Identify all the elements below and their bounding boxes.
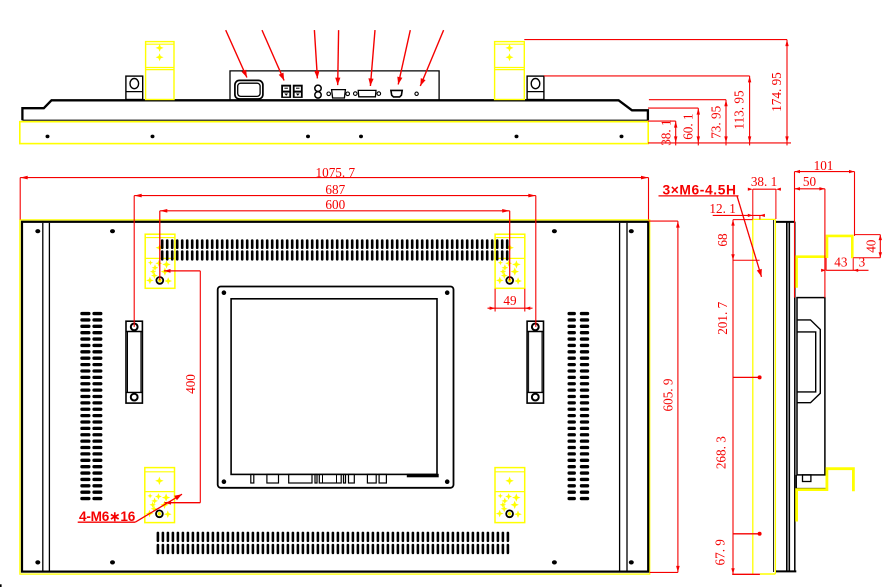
svg-text:67. 9: 67. 9 (712, 539, 727, 566)
svg-text:400: 400 (183, 374, 198, 394)
svg-text:60. 1: 60. 1 (681, 113, 696, 139)
svg-text:174. 95: 174. 95 (769, 72, 784, 112)
svg-text:101: 101 (814, 158, 834, 173)
svg-text:1075. 7: 1075. 7 (316, 165, 356, 180)
svg-text:605. 9: 605. 9 (660, 378, 675, 411)
svg-text:201. 7: 201. 7 (715, 301, 730, 334)
svg-text:38. 1: 38. 1 (658, 119, 673, 145)
svg-text:113. 95: 113. 95 (732, 90, 747, 129)
svg-text:68: 68 (715, 233, 730, 247)
svg-text:49: 49 (503, 293, 517, 308)
svg-text:687: 687 (325, 182, 345, 197)
svg-text:600: 600 (325, 197, 345, 212)
svg-text:38. 1: 38. 1 (751, 174, 777, 189)
svg-text:40: 40 (863, 239, 878, 253)
svg-text:3: 3 (859, 255, 866, 270)
svg-text:268. 3: 268. 3 (714, 436, 729, 469)
svg-text:73. 95: 73. 95 (708, 105, 723, 138)
svg-text:43: 43 (834, 255, 848, 270)
svg-text:12. 1: 12. 1 (709, 201, 735, 216)
svg-text:50: 50 (803, 174, 817, 189)
